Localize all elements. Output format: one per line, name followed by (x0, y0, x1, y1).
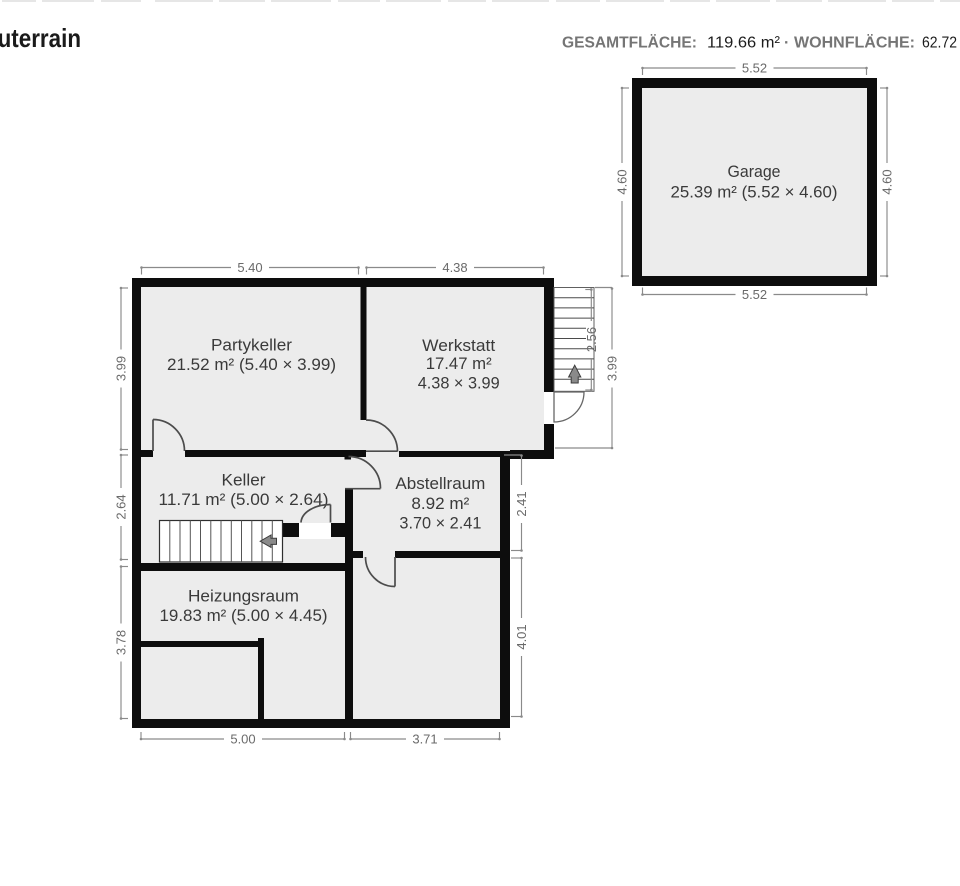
svg-text:3.78: 3.78 (114, 630, 129, 655)
svg-text:4.60: 4.60 (615, 169, 630, 194)
svg-text:2.56: 2.56 (584, 327, 599, 352)
svg-text:Partykeller: Partykeller (211, 335, 292, 354)
svg-text:8.92 m²: 8.92 m² (411, 494, 469, 513)
svg-text:119.66 m²: 119.66 m² (707, 35, 781, 52)
svg-text:5.00: 5.00 (230, 732, 255, 747)
svg-text:Werkstatt: Werkstatt (422, 336, 495, 355)
svg-text:62.72: 62.72 (922, 35, 957, 52)
svg-text:19.83 m² (5.00 × 4.45): 19.83 m² (5.00 × 4.45) (160, 606, 328, 625)
svg-text:2.41: 2.41 (514, 491, 529, 516)
svg-text:4.38 × 3.99: 4.38 × 3.99 (418, 373, 500, 392)
svg-text:4.38: 4.38 (442, 260, 467, 275)
svg-text:5.40: 5.40 (237, 260, 262, 275)
svg-text:Keller: Keller (222, 471, 266, 490)
svg-text:5.52: 5.52 (742, 287, 767, 302)
svg-text:2.64: 2.64 (114, 494, 129, 519)
svg-text:Garage: Garage (728, 162, 781, 181)
svg-text:5.52: 5.52 (742, 61, 767, 76)
svg-text:3.99: 3.99 (605, 356, 620, 381)
svg-text:4.60: 4.60 (880, 169, 895, 194)
svg-text:Heizungsraum: Heizungsraum (188, 586, 299, 605)
svg-text:3.99: 3.99 (114, 356, 129, 381)
svg-text:Souterrain: Souterrain (0, 23, 81, 53)
svg-text:4.01: 4.01 (514, 624, 529, 649)
svg-text:Abstellraum: Abstellraum (395, 474, 485, 493)
svg-text:21.52 m² (5.40 × 3.99): 21.52 m² (5.40 × 3.99) (167, 355, 336, 374)
svg-text:11.71 m² (5.00 × 2.64): 11.71 m² (5.00 × 2.64) (159, 490, 329, 509)
svg-text:3.71: 3.71 (412, 732, 437, 747)
svg-text:GESAMTFLÄCHE:: GESAMTFLÄCHE: (562, 34, 697, 52)
svg-text:25.39 m² (5.52 × 4.60): 25.39 m² (5.52 × 4.60) (671, 183, 838, 202)
svg-text:WOHNFLÄCHE:: WOHNFLÄCHE: (794, 34, 915, 52)
svg-text:3.70 × 2.41: 3.70 × 2.41 (399, 513, 481, 532)
svg-text:17.47 m²: 17.47 m² (426, 354, 492, 373)
svg-text:·: · (784, 35, 789, 52)
